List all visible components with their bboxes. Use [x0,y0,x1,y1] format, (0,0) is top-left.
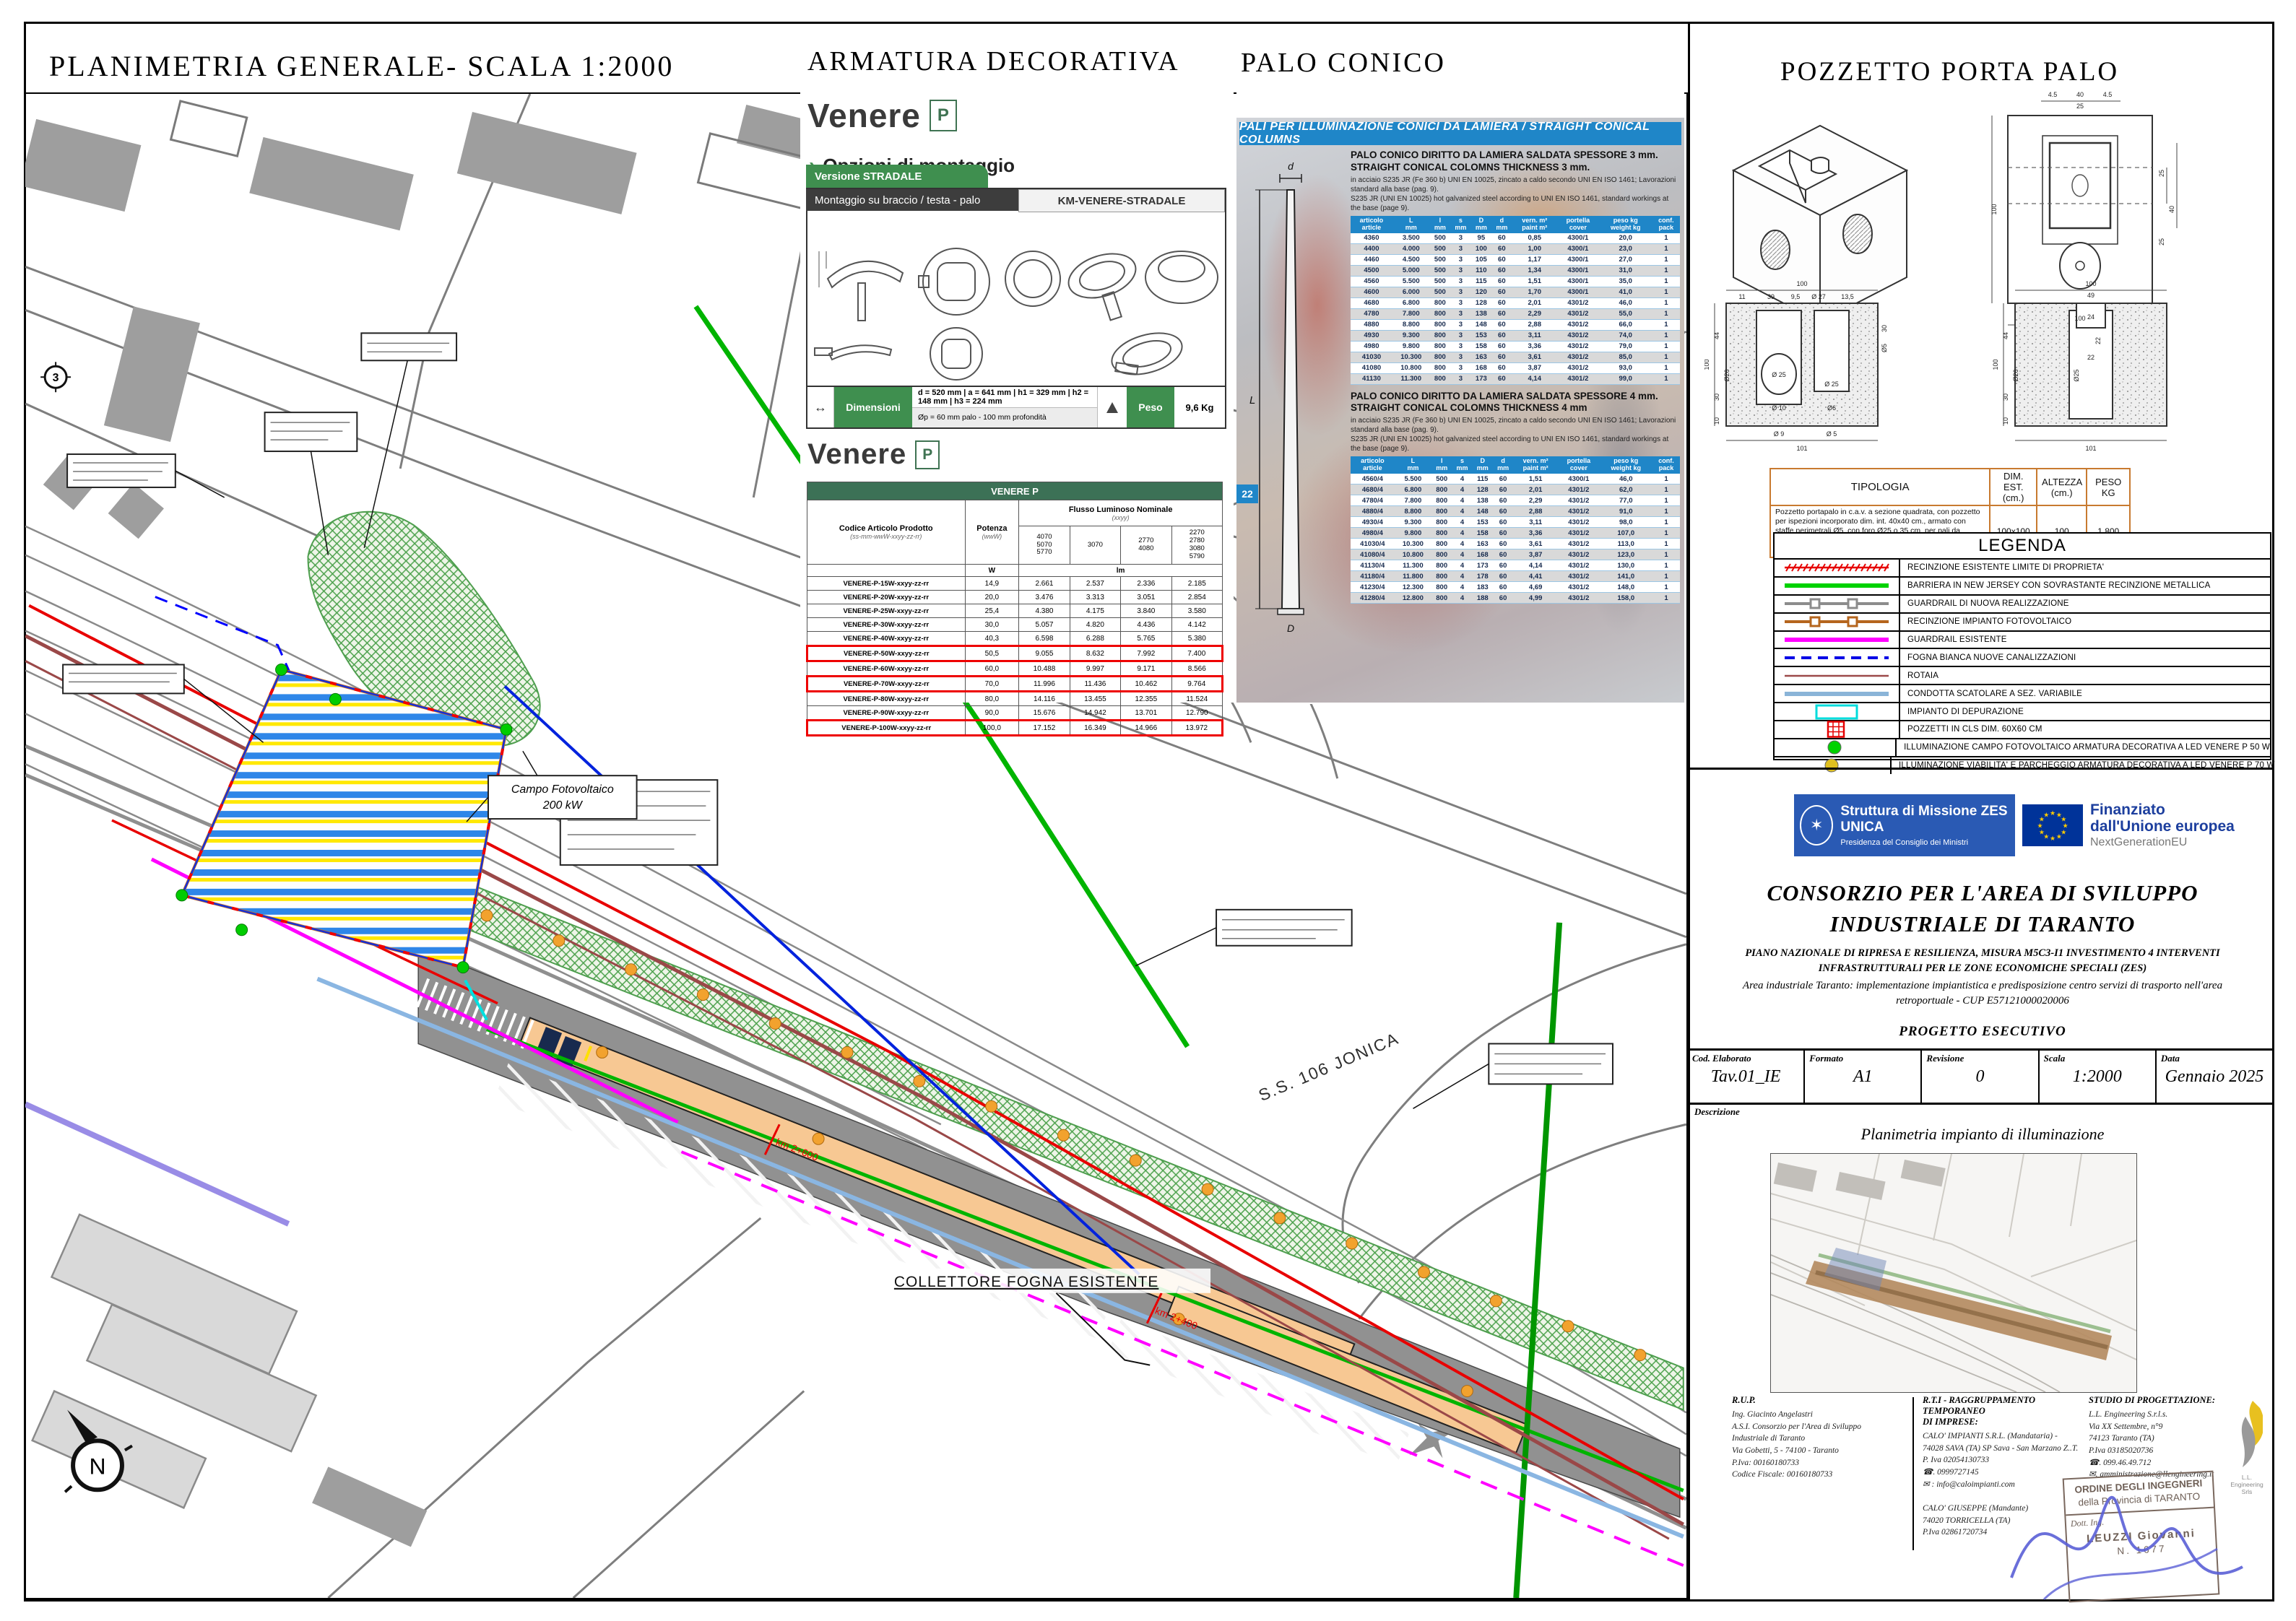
engineer-stamp: ORDINE DEGLI INGEGNERIdella Provincia di… [2063,1471,2220,1603]
svg-text:Ø 25: Ø 25 [1772,371,1786,378]
project-area-text: Area industriale Taranto: implementazion… [1697,978,2268,1009]
column-divider [1688,22,1690,1599]
pozzetto-section-1 [1715,290,1878,440]
palo-table-4mm: articoloarticleLmmlmmsmmDmmdmmvern. m²pa… [1351,456,1680,604]
svg-text:D: D [1287,622,1294,634]
legend-swatch-icon [1775,596,1900,612]
legend-swatch-icon [1775,632,1900,648]
svg-text:22: 22 [2087,354,2094,361]
pv-field-label: Campo Fotovoltaico 200 kW [467,775,637,822]
legend-item: CONDOTTA SCATOLARE A SEZ. VARIABILE [1775,685,2270,703]
svg-text:11: 11 [1738,293,1745,300]
legend-item: POZZETTI IN CLS DIM. 60X60 CM [1775,721,2270,739]
legend-swatch-icon [1775,739,1897,756]
svg-text:Ø5: Ø5 [1881,344,1888,352]
legend-swatch-icon [1775,578,1900,594]
legend-item: IMPIANTO DI DEPURAZIONE [1775,703,2270,721]
svg-text:Ø26: Ø26 [2012,369,2019,381]
field-scala: Scala1:2000 [2040,1051,2157,1103]
svg-text:L: L [1249,394,1255,407]
svg-text:200 kW: 200 kW [542,799,584,812]
eu-funding-logo: ★★★★★★★★★★★★ Finanziatodall'Unione europ… [2022,794,2268,856]
flame-icon [2231,1401,2263,1470]
eu-flag-icon: ★★★★★★★★★★★★ [2022,804,2083,846]
svg-text:3: 3 [53,372,59,384]
svg-text:25: 25 [2076,103,2084,110]
svg-text:100: 100 [1990,204,1998,214]
legend-swatch-icon [1775,721,1900,738]
palo-title: PALO CONICO [1241,47,1446,79]
svg-text:22: 22 [2094,337,2102,344]
legend-item: ILLUMINAZIONE VIABILITA' E PARCHEGGIO AR… [1775,757,2270,774]
pozzetto-plan [1992,101,2177,325]
marker-3: 3 [40,362,71,392]
svg-text:101: 101 [2085,445,2096,452]
svg-text:Ø 10: Ø 10 [1772,404,1786,412]
field-formato: FormatoA1 [1805,1051,1922,1103]
dim-arrow-icon: ↔ [807,387,834,427]
svg-text:Ø 27: Ø 27 [1811,293,1826,300]
armatura-decorativa-panel: ARMATURA DECORATIVA Venere P › Opzioni d… [800,40,1234,703]
svg-text:44: 44 [2002,332,2009,339]
svg-text:★: ★ [2037,822,2042,830]
svg-text:40: 40 [2076,91,2084,98]
svg-text:Ø 5: Ø 5 [1827,430,1837,438]
svg-text:101: 101 [1796,445,1807,452]
pozzetto-title: POZZETTO PORTA PALO [1780,56,2119,87]
tab-montaggio: Montaggio su braccio / testa - palo [806,189,1023,211]
venere-brand: Venere P [807,96,957,135]
legend-swatch-icon [1775,560,1900,576]
italy-emblem-icon: ✶ [1800,805,1833,846]
weight-icon [1097,387,1127,427]
collettore-label: COLLETTORE FOGNA ESISTENTE [894,1274,1158,1290]
legend-title: LEGENDA [1775,534,2270,560]
palo-table-3mm: articoloarticleLmmlmmsmmDmmdmmvern. m²pa… [1351,216,1680,385]
svg-text:13,5: 13,5 [1841,293,1854,300]
pnrr-text: PIANO NAZIONALE DI RIPRESA E RESILIENZA,… [1697,946,2268,976]
svg-text:30: 30 [2002,394,2009,401]
legend-item: BARRIERA IN NEW JERSEY CON SOVRASTANTE R… [1775,578,2270,596]
green-line [1516,923,1559,1598]
svg-text:100: 100 [1992,359,1999,370]
palo-conico-panel: PALO CONICO PALI PER ILLUMINAZIONE CONIC… [1236,40,1684,704]
svg-text:★: ★ [2043,811,2049,818]
svg-text:★: ★ [2056,833,2062,840]
legend-item: ILLUMINAZIONE CAMPO FOTOVOLTAICO ARMATUR… [1775,739,2270,757]
svg-text:★: ★ [2050,835,2055,842]
svg-text:39: 39 [1767,293,1775,300]
svg-text:Ø6: Ø6 [1827,404,1836,412]
legend-swatch-icon [1775,667,1900,684]
svg-text:Campo Fotovoltaico: Campo Fotovoltaico [511,783,614,796]
svg-text:Ø25: Ø25 [2073,369,2080,381]
palo-photo-background: PALI PER ILLUMINAZIONE CONICI DA LAMIERA… [1236,118,1684,703]
svg-text:d: d [1288,160,1294,172]
svg-text:Ø 25: Ø 25 [1824,381,1839,388]
armatura-title: ARMATURA DECORATIVA [807,45,1180,77]
venere-p-table: VENERE P Codice Articolo Prodotto(ss-mm-… [806,482,1223,736]
dimensioni-label: Dimensioni [834,387,912,427]
luminaire-drawings [807,212,1223,384]
svg-text:25: 25 [2158,170,2165,177]
minimap-thumbnail [1771,1154,2136,1392]
page-title: PLANIMETRIA GENERALE- SCALA 1:2000 [49,49,674,83]
legend-item: RECINZIONE IMPIANTO FOTOVOLTAICO [1775,614,2270,632]
dims-line1: d = 520 mm | a = 641 mm | h1 = 329 mm | … [912,387,1097,407]
titleblock-divider [1688,768,2272,770]
peso-label: Peso [1127,387,1174,427]
legend-swatch-icon [1775,703,1900,720]
svg-text:25: 25 [2158,238,2165,245]
legend-item: GUARDRAIL DI NUOVA REALIZZAZIONE [1775,596,2270,614]
gov-banner: ✶ Struttura di Missione ZES UNICA Presid… [1794,794,2015,856]
svg-text:4.5: 4.5 [2103,91,2113,98]
legend-table: LEGENDA RECINZIONE ESISTENTE LIMITE DI P… [1773,532,2271,760]
legend-item: ROTAIA [1775,667,2270,685]
svg-text:40: 40 [2168,206,2175,213]
pole-diagram: d L D 22 [1236,147,1348,701]
ss106-label: S.S. 106 JONICA [1256,1029,1402,1105]
consortium-title: CONSORZIO PER L'AREA DI SVILUPPO INDUSTR… [1694,877,2271,940]
dims-line2: Øp = 60 mm palo - 100 mm profondità [912,407,1097,428]
newjersey-barrier-line [487,1030,1684,1491]
svg-text:★: ★ [2050,809,2055,817]
mounting-diagram-box: Versione STRADALE Montaggio su braccio /… [806,188,1226,429]
svg-text:44: 44 [1713,332,1720,339]
rup-block: R.U.P.Ing. Giacinto AngelastriA.S.I. Con… [1732,1395,1902,1481]
field-revisione: Revisione0 [1922,1051,2039,1103]
ll-engineering-logo: L.L. Engineering Srls [2226,1401,2268,1495]
venere-brand-2: Venere P [807,438,940,471]
p-badge: P [915,440,940,469]
p-badge: P [930,100,957,131]
svg-text:100: 100 [2074,315,2085,322]
legend-item: FOGNA BIANCA NUOVE CANALIZZAZIONI [1775,649,2270,667]
purple-line [25,1104,288,1224]
svg-text:30: 30 [1713,394,1720,401]
palo-content: PALO CONICO DIRITTO DA LAMIERA SALDATA S… [1351,149,1680,604]
svg-text:100: 100 [2085,280,2096,287]
drawing-sheet: PLANIMETRIA GENERALE- SCALA 1:2000 [0,0,2296,1621]
peso-value: 9,6 Kg [1174,387,1225,427]
svg-text:100: 100 [1796,280,1807,287]
pozzetto-drawings: 4.5404.52510025402510010011399,5Ø 2713,5… [1704,87,2268,462]
legend-swatch-icon [1775,757,1892,774]
field-data: DataGennaio 2025 [2157,1051,2272,1103]
contacts-divider [1912,1397,1914,1550]
venere-table-title: VENERE P [807,482,1223,500]
svg-text:N: N [89,1453,105,1479]
svg-text:4.5: 4.5 [2048,91,2058,98]
studio-block: STUDIO DI PROGETTAZIONE:L.L. Engineering… [2089,1395,2244,1481]
svg-text:Ø26: Ø26 [1723,369,1730,381]
titleblock-fields: Cod. ElaboratoTav.01_IEFormatoA1Revision… [1688,1048,2272,1105]
svg-text:24: 24 [2087,313,2094,321]
pozzetto-section-2 [2003,290,2167,440]
svg-text:9,5: 9,5 [1791,293,1801,300]
legend-item: RECINZIONE ESISTENTE LIMITE DI PROPRIETA… [1775,560,2270,578]
dimension-bar: ↔ Dimensioni d = 520 mm | a = 641 mm | h… [807,386,1225,427]
legend-swatch-icon [1775,649,1900,666]
svg-text:100: 100 [1704,359,1710,370]
rti-block: R.T.I - RAGGRUPPAMENTO TEMPORANEO DI IMP… [1923,1395,2085,1539]
field-cod-elaborato: Cod. ElaboratoTav.01_IE [1688,1051,1805,1103]
tab-versione-stradale: Versione STRADALE [806,165,988,188]
legend-swatch-icon [1775,614,1900,630]
project-phase: PROGETTO ESECUTIVO [1697,1024,2268,1040]
svg-text:★: ★ [2039,828,2045,835]
legend-swatch-icon [1775,685,1900,702]
tab-km-venere-stradale: KM-VENERE-STRADALE [1018,189,1225,212]
descrizione-label: Descrizione [1694,1106,1740,1118]
svg-text:Ø 9: Ø 9 [1774,430,1785,438]
svg-text:49: 49 [2087,292,2094,299]
svg-text:10: 10 [2002,417,2009,425]
svg-text:10: 10 [1713,417,1720,425]
legend-item: GUARDRAIL ESISTENTE [1775,632,2270,650]
box-conduit-line [317,979,1683,1537]
descrizione-value: Planimetria impianto di illuminazione [1697,1125,2268,1144]
badge-22: 22 [1242,488,1253,500]
svg-text:30: 30 [1881,325,1888,332]
palo-banner: PALI PER ILLUMINAZIONE CONICI DA LAMIERA… [1239,122,1681,145]
